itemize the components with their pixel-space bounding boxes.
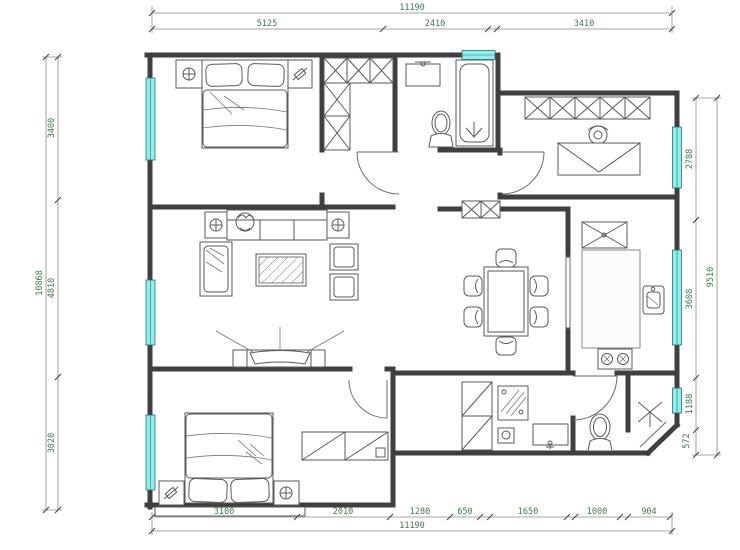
shoe-cabinet-icon (462, 201, 500, 218)
dim-bottom-seg-5: 1000 (587, 507, 607, 517)
dim-left-overall: 10868 (35, 270, 45, 296)
room-study (525, 97, 650, 175)
dim-bottom-seg-0: 3100 (214, 507, 234, 517)
stove-icon (598, 349, 632, 369)
room-laundry (462, 382, 568, 450)
floor-drain-icon (498, 428, 514, 443)
door-study (502, 152, 544, 194)
room-dining (464, 249, 548, 355)
room-bedroom-master (176, 60, 312, 148)
armchair-icon (330, 244, 358, 270)
kitchen-counter-icon (582, 250, 640, 348)
window-bedroom-second (146, 415, 155, 490)
door-bedroom-second (349, 380, 387, 418)
side-table-icon (205, 212, 227, 238)
dimension-left: 3400 4810 3020 10868 (35, 54, 62, 513)
dining-chair-icon (496, 249, 516, 267)
dim-top-seg-2: 3410 (574, 19, 594, 29)
dim-bottom-seg-6: 904 (641, 507, 656, 517)
wardrobe-icon (302, 432, 388, 460)
entry-wardrobe-icon (324, 58, 393, 150)
desk-icon (558, 143, 640, 175)
dimension-top: 11190 5125 2410 3410 (149, 3, 675, 33)
double-bed-icon (202, 60, 288, 148)
dim-right-seg-0: 2788 (685, 149, 695, 169)
window-bathroom-top (462, 51, 495, 60)
dim-bottom-overall: 11190 (399, 521, 425, 531)
wash-basin-icon (406, 62, 440, 86)
dim-top-overall: 11190 (399, 3, 425, 13)
nightstand-icon (159, 481, 184, 505)
window-study (673, 127, 682, 188)
dining-table-icon (484, 267, 528, 336)
side-table-icon (327, 212, 349, 238)
dining-chair-icon (530, 307, 548, 327)
tall-cabinet-icon (462, 382, 492, 450)
room-bathroom-top (406, 60, 493, 147)
study-wall-cabinet-icon (525, 97, 650, 119)
dining-chair-icon (496, 337, 516, 355)
window-bedroom-master (146, 78, 155, 160)
window-shower (673, 388, 682, 413)
dining-chair-icon (530, 276, 548, 296)
dim-bottom-seg-3: 650 (457, 507, 472, 517)
dim-left-seg-0: 3400 (47, 118, 57, 138)
tv-cabinet-icon (216, 327, 344, 367)
dim-left-seg-2: 3020 (47, 433, 57, 453)
double-bed-icon (185, 413, 273, 503)
dim-top-seg-1: 2410 (425, 19, 445, 29)
bathtub-icon (456, 60, 493, 146)
dim-top-seg-0: 5125 (257, 19, 277, 29)
dim-left-seg-1: 4810 (47, 278, 57, 298)
dining-chair-icon (464, 276, 482, 296)
dim-bottom-seg-4: 1650 (518, 507, 538, 517)
nightstand-icon (274, 481, 299, 505)
window-kitchen (673, 250, 682, 345)
room-bedroom-second (155, 413, 388, 516)
dim-bottom-seg-2: 1280 (410, 507, 430, 517)
dim-right-seg-3: 572 (682, 433, 692, 448)
chaise-icon (200, 242, 232, 296)
room-shower (638, 402, 662, 427)
toilet-icon (429, 111, 453, 147)
room-toilet-bottom (588, 414, 612, 451)
door-bathroom-top (357, 152, 399, 194)
toilet-icon (588, 414, 612, 451)
washing-machine-icon (498, 386, 528, 420)
room-kitchen (582, 222, 664, 369)
armchair-icon (330, 274, 358, 300)
dim-right-seg-1: 3608 (685, 289, 695, 309)
laundry-basin-icon (533, 424, 568, 449)
desk-chair-icon (588, 126, 608, 144)
fridge-cabinet-icon (582, 222, 627, 248)
window-living-room (146, 280, 155, 345)
coffee-table-icon (256, 254, 306, 286)
dim-bottom-seg-1: 2010 (333, 507, 353, 517)
dimension-right: 2788 3608 1188 572 9510 (682, 95, 721, 458)
dimension-bottom: 3100 2010 1280 650 1650 1000 904 11190 (149, 507, 675, 535)
dining-chair-icon (464, 307, 482, 327)
door-shower-diagonal (640, 422, 666, 447)
kitchen-sink-icon (643, 286, 664, 314)
dim-right-overall: 9510 (706, 267, 716, 287)
door-toilet-bottom (573, 376, 617, 420)
shower-icon (638, 402, 662, 427)
nightstand-icon (176, 60, 202, 88)
room-living (200, 210, 358, 367)
dim-right-seg-2: 1188 (685, 394, 695, 414)
floor-plan: 11190 5125 2410 3410 3100 2010 1280 650 … (0, 0, 740, 550)
nightstand-icon (288, 60, 312, 88)
